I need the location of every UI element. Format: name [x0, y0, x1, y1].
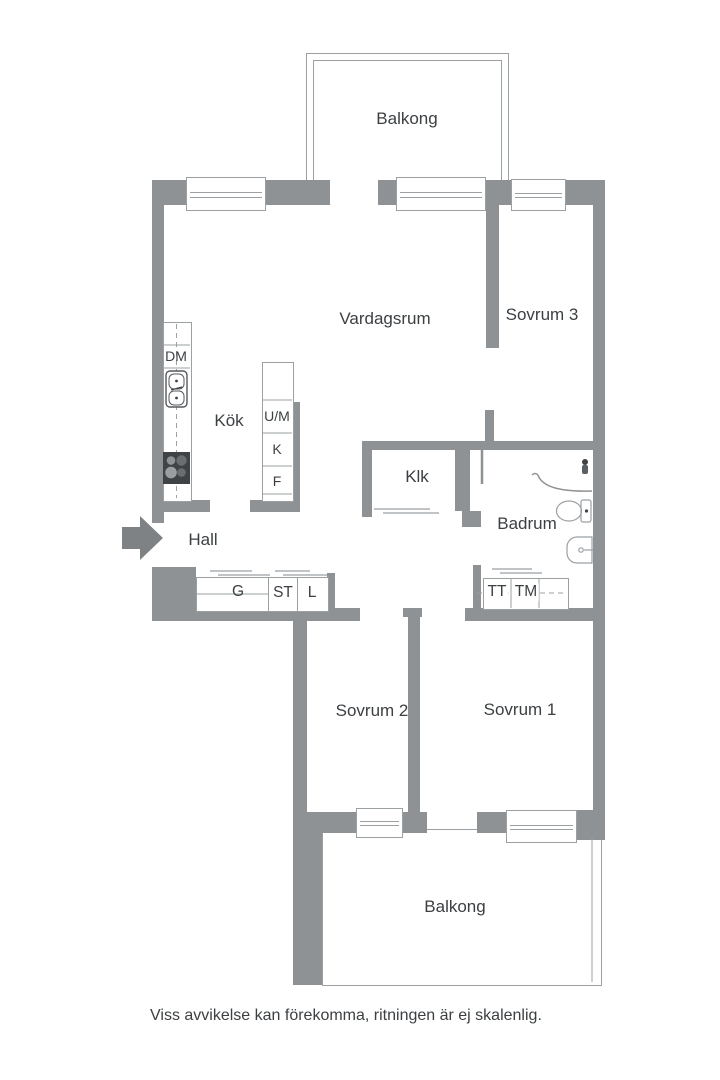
label-washer: TM: [513, 583, 539, 601]
laundry-sliding-doors: [492, 569, 542, 573]
wall-klk-foot: [462, 511, 481, 527]
wall-bedroom-divider-foot: [400, 812, 427, 833]
label-bedroom3: Sovrum 3: [506, 305, 579, 325]
label-bathroom: Badrum: [497, 514, 557, 534]
label-kitchen: Kök: [214, 411, 243, 431]
wall-top-4: [483, 180, 513, 205]
wall-top-5: [563, 180, 605, 205]
label-balcony-bottom: Balkong: [424, 897, 485, 917]
wall-top-2: [263, 180, 330, 205]
wall-lower-left: [293, 608, 307, 833]
label-hall: Hall: [188, 530, 217, 550]
window-bedroom3: [511, 179, 566, 211]
label-wardrobe-g: G: [232, 583, 244, 601]
label-oven-micro: U/M: [264, 408, 290, 424]
wall-klk-left: [362, 450, 372, 517]
label-dryer: TT: [486, 583, 509, 601]
window-bedroom2: [356, 808, 403, 838]
label-freezer: F: [273, 473, 282, 489]
klk-sliding-door: [374, 509, 439, 513]
shower-icon: [532, 459, 592, 491]
wall-bottom-1: [307, 812, 357, 833]
wall-bottom-2: [477, 812, 508, 833]
disclaimer-text: Viss avvikelse kan förekomma, ritningen …: [150, 1007, 542, 1025]
label-balcony-top: Balkong: [376, 109, 437, 129]
wall-bottom-right-block: [573, 810, 605, 840]
bathroom-sink-icon: [567, 537, 593, 563]
wall-klk-badrum-top: [362, 441, 605, 450]
window-kitchen: [186, 177, 266, 211]
floor-plan: Balkong Vardagsrum Sovrum 3 DM Kök U/M K…: [0, 0, 720, 1080]
label-closet: Klk: [405, 467, 429, 487]
wall-bedroom-divider: [408, 617, 420, 815]
window-living-room: [396, 177, 486, 211]
window-bedroom1: [506, 810, 577, 843]
wardrobe-stl-sliding-doors: [275, 571, 327, 575]
label-living-room: Vardagsrum: [339, 309, 430, 329]
label-wardrobe-st: ST: [273, 584, 293, 602]
label-wardrobe-l: L: [308, 584, 317, 602]
wall-bedroom-divider-cap: [403, 608, 422, 617]
wall-sovrum3-divider: [486, 205, 499, 348]
wall-sovrum3-stub: [485, 410, 494, 442]
wall-klk-right: [455, 450, 470, 511]
wall-top-3: [378, 180, 398, 205]
label-fridge: K: [272, 441, 281, 457]
label-bedroom1: Sovrum 1: [484, 700, 557, 720]
wardrobe-g-sliding-doors: [210, 571, 270, 575]
toilet-icon: [557, 500, 592, 522]
label-dishwasher: DM: [165, 348, 187, 364]
label-bedroom2: Sovrum 2: [336, 701, 409, 721]
wall-right: [593, 203, 605, 840]
wall-balcony-left-column: [293, 820, 322, 985]
